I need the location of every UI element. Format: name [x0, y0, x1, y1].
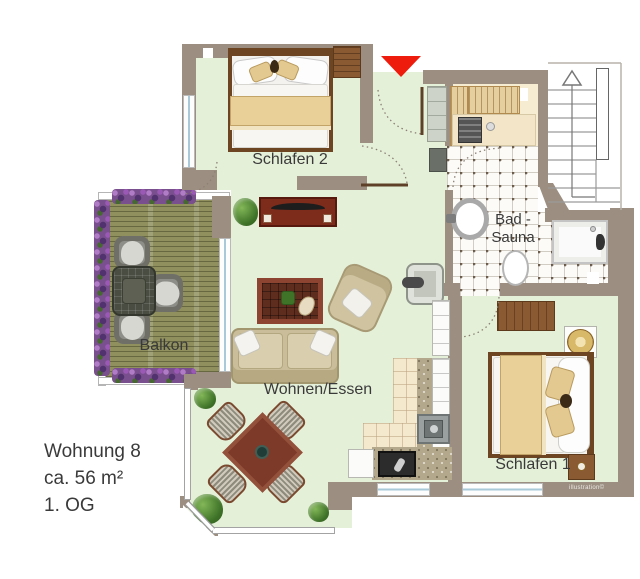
watermark: illustration©	[569, 485, 604, 491]
entrance-arrow	[381, 56, 421, 77]
room-label-schlafen1: Schlafen 1	[487, 456, 579, 474]
apartment-title: Wohnung 8	[44, 438, 141, 465]
front-door-arc	[378, 90, 423, 134]
stair-treads	[548, 90, 620, 202]
door-arcs	[184, 90, 501, 337]
room-label-wohnen-essen: Wohnen/Essen	[256, 381, 380, 399]
floorplan: Schlafen 2 Bad - Sauna Balkon Wohnen/Ess…	[0, 0, 640, 579]
room-label-bad-sauna-line1: Bad -	[468, 211, 558, 229]
room-label-balkon: Balkon	[126, 337, 202, 355]
stair-up-arrow-icon	[563, 71, 581, 85]
apartment-info: Wohnung 8 ca. 56 m² 1. OG	[44, 438, 141, 519]
schlafen2-door-arc	[362, 146, 407, 183]
apartment-area: ca. 56 m²	[44, 465, 141, 492]
bay-corner-mask	[183, 505, 216, 537]
apartment-floor: 1. OG	[44, 492, 141, 519]
schlafen1-door-arc	[462, 297, 499, 337]
balcony-door-arc	[184, 162, 217, 194]
bath-door-arc	[453, 148, 501, 187]
room-label-schlafen2: Schlafen 2	[234, 151, 346, 169]
room-label-bad-sauna-line2: Sauna	[468, 229, 558, 247]
